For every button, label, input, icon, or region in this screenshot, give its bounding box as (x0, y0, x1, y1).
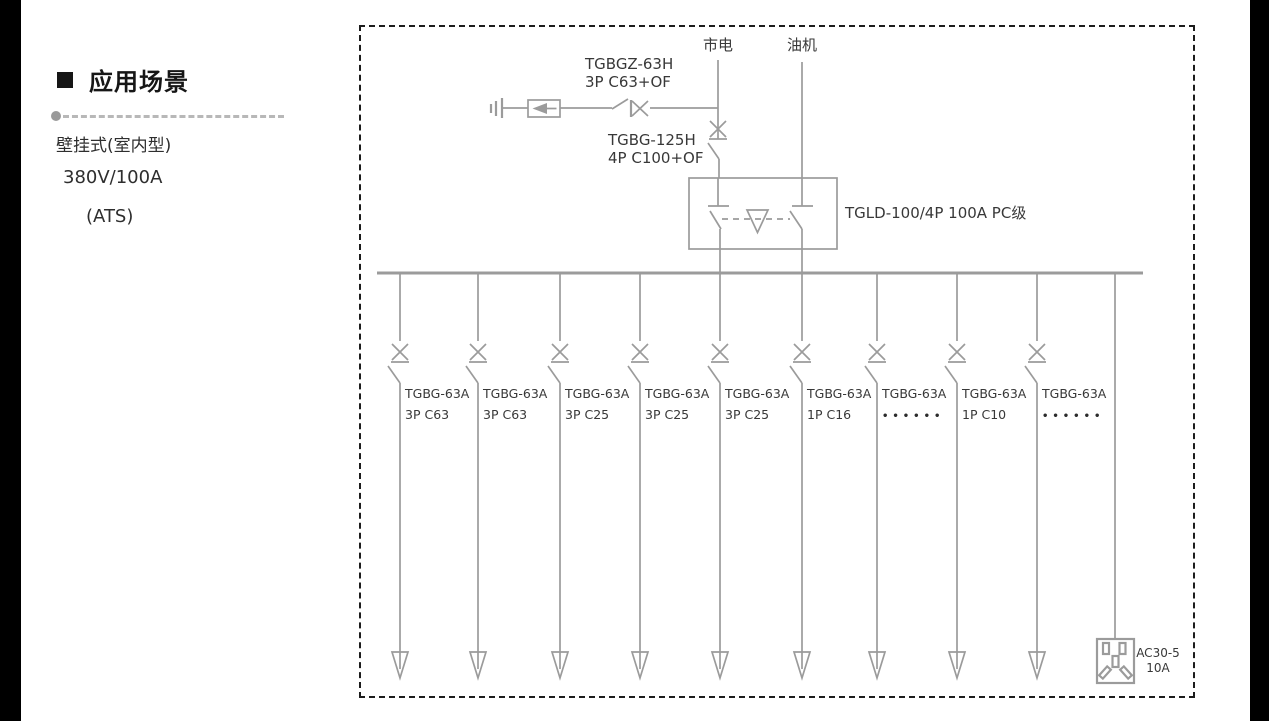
feeder-branch-symbol (548, 273, 569, 678)
feeder-branch-symbol (1025, 273, 1046, 678)
branch-label: TGBG-63A3P C25 (565, 387, 629, 422)
spd-breaker-symbol (560, 99, 718, 117)
feeder-branch-symbol (628, 273, 649, 678)
branch-spec: 3P C25 (645, 408, 709, 422)
ats-label: TGLD-100/4P 100A PC级 (845, 204, 1026, 222)
branch-model: TGBG-63A (1042, 387, 1106, 401)
branch-label: TGBG-63A3P C25 (725, 387, 789, 422)
main-breaker-model: TGBG-125H (608, 131, 703, 149)
branch-model: TGBG-63A (807, 387, 871, 401)
branch-spec: 3P C63 (483, 408, 547, 422)
ats-triangle-icon (747, 210, 768, 233)
spd-device-icon (502, 100, 560, 117)
branch-label: TGBG-63A•••••• (1042, 387, 1106, 424)
branch-model: TGBG-63A (882, 387, 946, 401)
branch-model: TGBG-63A (645, 387, 709, 401)
branch-spec: 3P C25 (565, 408, 629, 422)
feeder-branch-symbol (945, 273, 966, 678)
socket-icon (1097, 639, 1134, 683)
branch-label: TGBG-63A•••••• (882, 387, 946, 424)
spd-breaker-model: TGBGZ-63H (585, 55, 673, 73)
socket-label: AC30-5 10A (1133, 646, 1183, 676)
ground-icon (491, 98, 502, 118)
socket-model: AC30-5 (1133, 646, 1183, 661)
ats-box (689, 178, 837, 273)
feeder-branch-symbol (708, 273, 729, 678)
spd-breaker-label: TGBGZ-63H 3P C63+OF (585, 55, 673, 91)
schematic-svg (0, 0, 1269, 721)
feeder-branch-symbol (790, 273, 811, 678)
page: 应用场景 壁挂式(室内型) 380V/100A (ATS) (0, 0, 1269, 721)
main-breaker-symbol (708, 121, 727, 178)
main-breaker-spec: 4P C100+OF (608, 149, 703, 167)
branch-label: TGBG-63A3P C63 (483, 387, 547, 422)
mains-label: 市电 (693, 36, 743, 54)
branch-spec: •••••• (1042, 410, 1106, 424)
branch-spec: •••••• (882, 410, 946, 424)
branch-label: TGBG-63A1P C16 (807, 387, 871, 422)
feeder-branch-symbol (865, 273, 886, 678)
branch-spec: 1P C10 (962, 408, 1026, 422)
branch-spec: 1P C16 (807, 408, 871, 422)
generator-label: 油机 (777, 36, 827, 54)
branch-model: TGBG-63A (725, 387, 789, 401)
branch-spec: 3P C63 (405, 408, 469, 422)
branch-label: TGBG-63A3P C63 (405, 387, 469, 422)
main-breaker-label: TGBG-125H 4P C100+OF (608, 131, 703, 167)
branch-label: TGBG-63A1P C10 (962, 387, 1026, 422)
branch-model: TGBG-63A (962, 387, 1026, 401)
branch-spec: 3P C25 (725, 408, 789, 422)
branch-model: TGBG-63A (405, 387, 469, 401)
feeder-branches-layer (388, 273, 1046, 678)
branch-label: TGBG-63A3P C25 (645, 387, 709, 422)
socket-rating: 10A (1133, 661, 1183, 676)
branch-model: TGBG-63A (565, 387, 629, 401)
spd-breaker-spec: 3P C63+OF (585, 73, 673, 91)
feeder-branch-symbol (388, 273, 409, 678)
feeder-branch-symbol (466, 273, 487, 678)
branch-model: TGBG-63A (483, 387, 547, 401)
